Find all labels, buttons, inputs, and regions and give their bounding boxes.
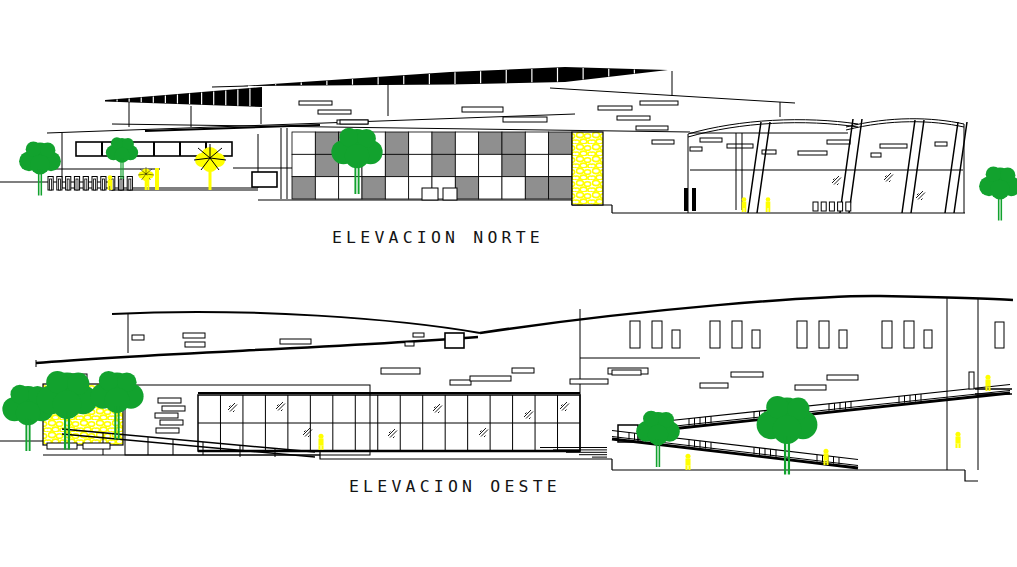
vertical-window [797,321,807,348]
stair-steps [540,448,607,458]
ramp-handrail [652,385,1010,423]
entry-door-bar [692,188,696,211]
ramp-deck [652,393,1010,431]
ramp-deck [612,439,858,468]
slit-window [871,153,881,157]
porch-opening [252,172,277,187]
base-post-row [813,202,851,211]
slit-window [450,380,471,385]
slit-window [640,101,678,105]
ground-lines-west [0,441,978,481]
slit-window [762,150,776,154]
bollard-slot [102,179,104,190]
canopy-roof-line [36,337,478,363]
tree-icon [979,167,1017,221]
slit-window [413,333,424,337]
slit-window [470,376,511,381]
slit-window [690,147,702,151]
vertical-window [672,330,680,348]
slit-window [155,413,178,418]
vertical-window [732,321,742,348]
facade-door [443,188,457,200]
vertical-window [995,322,1004,348]
base-post [821,202,826,211]
slit-window [280,339,311,344]
slit-window [652,140,674,144]
person-figure-icon [955,432,960,448]
slit-window [185,342,205,347]
glass-hatch-icon [884,173,893,182]
base-post [813,202,818,211]
facade-panel [502,177,525,199]
slit-window [162,406,185,411]
north-elevation-title: ELEVACION NORTE [332,228,544,247]
facade-panel [502,154,525,176]
bollard-slot [120,179,122,190]
person-figure-icon [766,197,771,212]
vertical-window [710,321,720,348]
slit-window [405,342,414,346]
facade-panel [432,132,455,154]
facade-panel [409,154,432,176]
facade-panel [455,132,478,154]
slit-window [183,333,205,338]
vertical-window [904,321,914,348]
slit-window [340,120,368,124]
slit-window [462,107,503,112]
facade-panel [385,154,408,176]
entry-door-bar [684,188,688,211]
ramp-top-platform [975,389,1012,394]
west-elevation [0,296,1013,481]
facade-panel [315,177,338,199]
ramp-railing-post [969,372,974,389]
bollard-slot [50,179,52,190]
upper-switchback-ramp [652,385,1010,432]
slit-window [700,138,722,142]
facade-panel [292,132,315,154]
glass-hatches-north [832,173,925,200]
slit-window [798,151,827,155]
slit-window [617,116,650,120]
bollard-slot [67,179,69,190]
slit-window [827,140,850,144]
facade-panel [385,177,408,199]
facade-panel [549,132,572,154]
slit-window [880,144,907,148]
window-group-row [630,321,932,348]
planter [83,443,110,449]
glass-hatch-icon [388,429,397,438]
facade-panel [525,154,548,176]
facade-panel [525,132,548,154]
slit-window [158,398,181,403]
facade-panel [525,177,548,199]
roof-line-right-sweep [480,296,1013,333]
west-elevation-title: ELEVACION OESTE [349,477,561,496]
person-figure-icon [742,197,747,212]
facade-panel [549,177,572,199]
glass-hatch-icon [276,402,285,411]
glass-hatch-icon [479,428,488,437]
slit-window [598,106,632,110]
person-figure-icon [823,449,828,465]
bollard-slot [76,179,78,190]
glass-hatch-icon [916,191,925,200]
facade-panel [549,154,572,176]
glass-hatch-icon [524,410,533,419]
slit-window [570,379,608,384]
glass-hatch-icon [433,404,442,413]
slit-window [503,117,547,122]
slit-window [827,375,858,380]
slit-window [636,126,668,130]
glass-hatch-icon [832,176,841,185]
slit-window [156,428,179,433]
facade-panel [409,132,432,154]
facade-panel [432,154,455,176]
facade-panel [292,154,315,176]
base-post [846,202,851,211]
drawing-sheet: ELEVACION NORTE ELEVACION OESTE [0,0,1017,567]
stone-texture-block-north [572,132,603,205]
slit-window [512,368,534,373]
facade-panel [479,132,502,154]
person-figure-icon [685,454,690,470]
slit-window [299,101,332,105]
glass-curtain-wall [198,336,580,451]
tree-icon [19,142,61,196]
square-window [445,333,464,348]
vertical-window [630,321,640,348]
facade-panel [292,177,315,199]
facade-panel [385,132,408,154]
slit-window [160,420,183,425]
facade-panel [479,177,502,199]
vertical-window [752,330,760,348]
yellow-door-strip [155,168,159,190]
vertical-window [652,321,662,348]
slit-window [318,110,351,114]
facade-panel [362,177,385,199]
person-figure-icon [318,434,323,450]
base-post [838,202,843,211]
slit-window [132,335,144,340]
glass-hatch-icon [560,402,569,411]
slit-window [727,144,753,148]
base-post [829,202,834,211]
tree-icon [636,411,680,467]
roof-line-upper-left [112,312,480,333]
vertical-window [924,330,932,348]
bollard-slot [94,179,96,190]
roof-fascia-lines [47,86,795,133]
bollard-slot [85,179,87,190]
planter [47,443,77,449]
vertical-window [839,330,847,348]
bollard-slot [129,179,131,190]
slit-window [935,142,947,146]
facade-panel [455,154,478,176]
facade-panel [479,154,502,176]
slit-window [612,370,641,375]
slit-window [381,368,420,374]
facade-panel [455,177,478,199]
facade-panel [502,132,525,154]
slit-ladder [155,398,185,433]
slit-window [795,385,826,390]
slit-window [731,372,763,377]
facade-door [422,188,438,200]
vertical-window [882,321,892,348]
elevation-drawing-canvas: ELEVACION NORTE ELEVACION OESTE [0,0,1017,567]
bollard-slot [58,179,60,190]
slit-window [700,383,728,388]
vertical-window [819,321,829,348]
north-elevation [0,67,1017,220]
glass-hatch-icon [228,403,237,412]
